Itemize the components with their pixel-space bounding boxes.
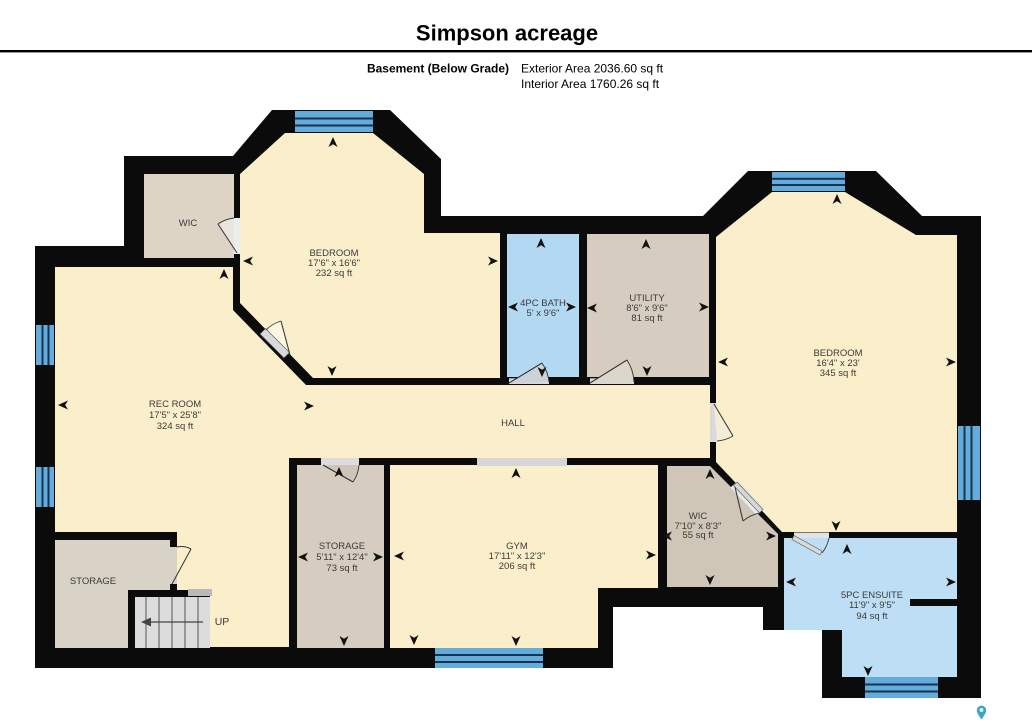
svg-text:324 sq ft: 324 sq ft <box>157 421 194 432</box>
svg-text:WIC: WIC <box>179 218 198 229</box>
svg-text:55 sq ft: 55 sq ft <box>682 530 714 541</box>
svg-text:Basement (Below Grade): Basement (Below Grade) <box>367 62 509 76</box>
svg-text:232 sq ft: 232 sq ft <box>316 268 353 279</box>
svg-text:5'11" x 12'4": 5'11" x 12'4" <box>316 552 367 563</box>
svg-text:Exterior Area 2036.60 sq ft: Exterior Area 2036.60 sq ft <box>521 62 664 76</box>
svg-text:HALL: HALL <box>501 418 525 429</box>
svg-text:206 sq ft: 206 sq ft <box>499 561 536 572</box>
svg-text:73 sq ft: 73 sq ft <box>326 563 358 574</box>
svg-text:17'5" x 25'8": 17'5" x 25'8" <box>149 410 201 421</box>
svg-text:5' x 9'6": 5' x 9'6" <box>527 308 560 319</box>
svg-text:Interior Area 1760.26 sq ft: Interior Area 1760.26 sq ft <box>521 77 660 91</box>
svg-text:94 sq ft: 94 sq ft <box>856 611 888 622</box>
svg-text:81 sq ft: 81 sq ft <box>631 313 663 324</box>
svg-text:Simpson acreage: Simpson acreage <box>416 21 598 46</box>
svg-text:REC ROOM: REC ROOM <box>149 399 201 410</box>
svg-text:11'9" x 9'5": 11'9" x 9'5" <box>849 600 895 611</box>
svg-text:STORAGE: STORAGE <box>70 576 116 587</box>
svg-text:UP: UP <box>215 616 230 628</box>
svg-text:STORAGE: STORAGE <box>319 541 365 552</box>
svg-text:345 sq ft: 345 sq ft <box>820 368 857 379</box>
